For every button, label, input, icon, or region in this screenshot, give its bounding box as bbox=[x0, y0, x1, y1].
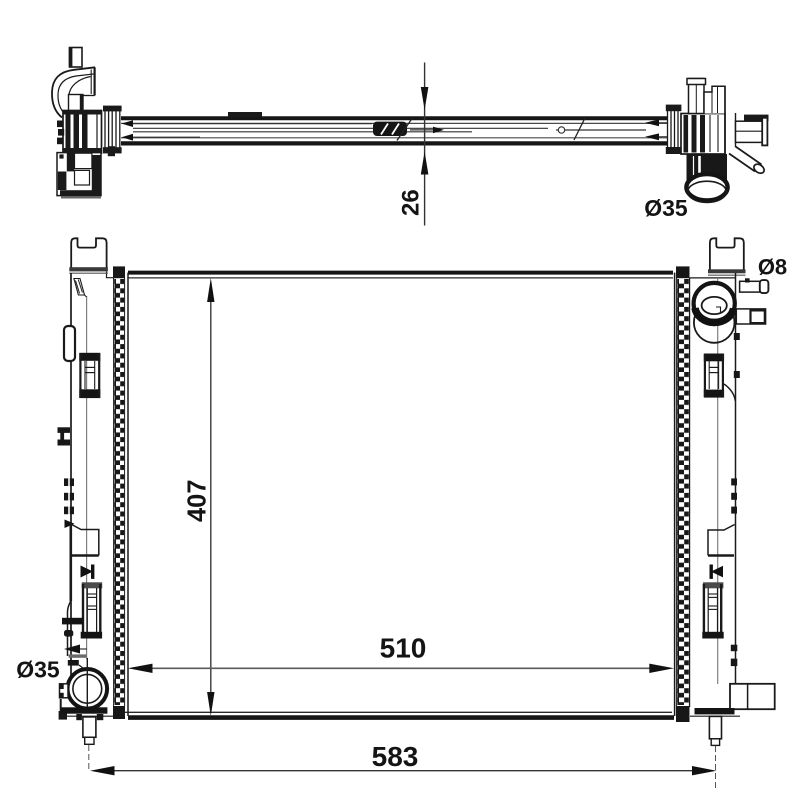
svg-text:26: 26 bbox=[398, 189, 425, 216]
svg-text:407: 407 bbox=[184, 479, 212, 522]
svg-text:Ø35: Ø35 bbox=[644, 195, 688, 221]
svg-text:Ø8: Ø8 bbox=[758, 255, 787, 280]
svg-text:583: 583 bbox=[372, 741, 419, 772]
svg-text:510: 510 bbox=[380, 633, 427, 664]
svg-text:Ø35: Ø35 bbox=[16, 657, 60, 683]
